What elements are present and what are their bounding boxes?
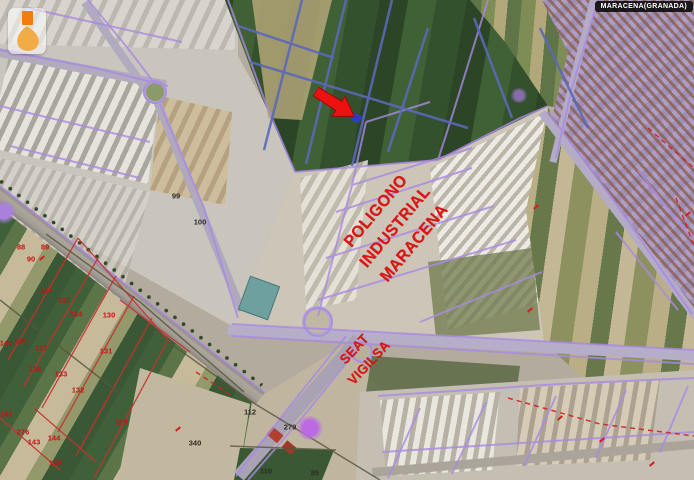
red-survey-mark: [649, 461, 655, 466]
red-survey-mark: [533, 204, 539, 209]
red-survey-mark: [175, 426, 181, 431]
satellite-map[interactable]: POLIGONO INDUSTRIAL MARACENA SEAT VIGILS…: [0, 0, 694, 480]
region-label: MARACENA(GRANADA): [595, 1, 693, 12]
logo-badge[interactable]: [8, 8, 46, 54]
red-survey-mark: [557, 415, 563, 420]
red-survey-mark: [39, 255, 45, 260]
red-mark-layer: [0, 0, 694, 480]
red-survey-mark: [685, 211, 691, 216]
orange-pin-icon: [8, 8, 46, 54]
red-survey-mark: [527, 307, 533, 312]
red-survey-mark: [599, 437, 605, 442]
